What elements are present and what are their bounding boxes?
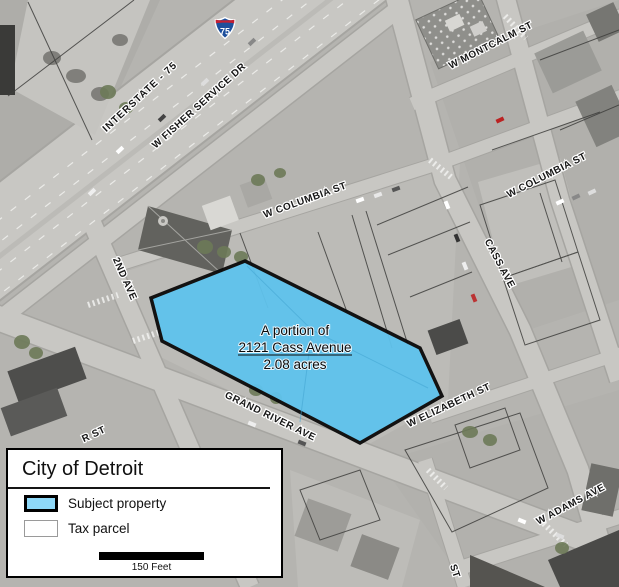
scale-bar [99,552,204,560]
tax-parcel-swatch [24,520,58,537]
scale-bar-text: 150 Feet [99,562,204,573]
svg-text:75: 75 [220,27,230,37]
legend-panel: City of Detroit Subject property Tax par… [6,448,283,578]
svg-text:2121 Cass Avenue: 2121 Cass Avenue [238,340,351,355]
legend-item-label: Subject property [68,496,166,511]
legend-item-tax-parcel: Tax parcel [24,520,130,537]
legend-item-label: Tax parcel [68,521,130,536]
svg-text:2.08 acres: 2.08 acres [263,357,326,372]
legend-divider [8,487,270,489]
svg-text:A portion of: A portion of [261,323,330,338]
subject-property-swatch [24,495,58,512]
legend-item-subject-property: Subject property [24,495,166,512]
legend-title: City of Detroit [22,458,143,481]
map-viewport: 75 INTERSTATE - 75 W FISHER SERVICE DR W… [0,0,619,587]
